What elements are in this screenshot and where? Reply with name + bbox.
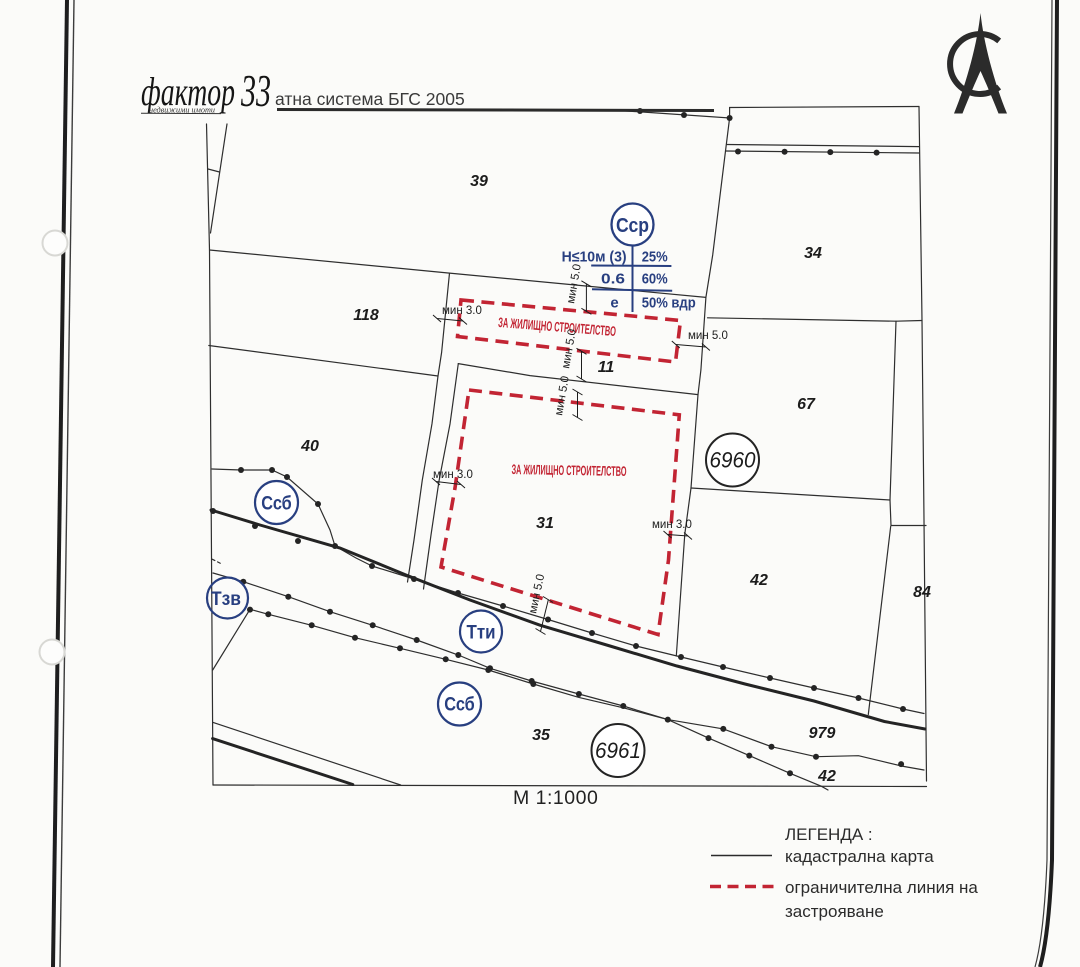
svg-text:118: 118 — [353, 307, 379, 324]
svg-text:50% вдр: 50% вдр — [642, 295, 696, 312]
svg-text:40: 40 — [300, 438, 319, 455]
svg-text:25%: 25% — [642, 249, 668, 266]
svg-text:Сср: Сср — [616, 215, 649, 237]
svg-text:недвижими имоти: недвижими имоти — [149, 105, 215, 115]
svg-text:67: 67 — [797, 396, 816, 413]
svg-text:Н≤10м (3): Н≤10м (3) — [562, 249, 627, 266]
svg-text:ЛЕГЕНДА :: ЛЕГЕНДА : — [785, 825, 873, 844]
svg-text:е: е — [610, 295, 618, 312]
svg-text:60%: 60% — [642, 271, 668, 288]
svg-text:6961: 6961 — [595, 738, 641, 763]
svg-text:ЗА ЖИЛИЩНО СТРОИТЕЛСТВО: ЗА ЖИЛИЩНО СТРОИТЕЛСТВО — [498, 315, 617, 339]
svg-text:ограничителна линия на: ограничителна линия на — [785, 878, 978, 897]
svg-text:6960: 6960 — [710, 448, 757, 473]
svg-text:атна система БГС 2005: атна система БГС 2005 — [275, 89, 465, 109]
svg-text:39: 39 — [470, 173, 488, 190]
svg-text:Ссб: Ссб — [261, 494, 292, 515]
svg-text:мин 5.0: мин 5.0 — [553, 375, 572, 416]
svg-text:мин 5.0: мин 5.0 — [565, 263, 584, 304]
svg-text:Тти: Тти — [467, 623, 496, 644]
svg-text:кадастрална карта: кадастрална карта — [785, 847, 934, 866]
svg-text:31: 31 — [536, 515, 554, 532]
svg-text:42: 42 — [817, 768, 836, 785]
svg-text:мин 3.0: мин 3.0 — [433, 469, 473, 481]
svg-text:35: 35 — [532, 727, 551, 744]
svg-text:979: 979 — [809, 725, 836, 742]
svg-text:84: 84 — [913, 584, 931, 601]
svg-text:мин 5.0: мин 5.0 — [688, 330, 728, 342]
svg-text:мин 3.0: мин 3.0 — [652, 519, 692, 531]
svg-text:М 1:1000: М 1:1000 — [513, 787, 598, 809]
svg-text:мин 3.0: мин 3.0 — [442, 305, 482, 317]
svg-text:0.6: 0.6 — [601, 271, 625, 288]
svg-text:застрояване: застрояване — [785, 902, 884, 921]
svg-text:Ссб: Ссб — [444, 695, 475, 716]
svg-text:ЗА ЖИЛИЩНО СТРОИТЕЛСТВО: ЗА ЖИЛИЩНО СТРОИТЕЛСТВО — [511, 462, 626, 479]
svg-text:34: 34 — [804, 245, 822, 262]
svg-text:мин 5.0: мин 5.0 — [527, 573, 547, 614]
svg-text:11: 11 — [598, 359, 615, 376]
svg-text:42: 42 — [749, 572, 768, 589]
svg-text:33: 33 — [240, 66, 271, 116]
svg-text:Тзв: Тзв — [211, 589, 241, 610]
